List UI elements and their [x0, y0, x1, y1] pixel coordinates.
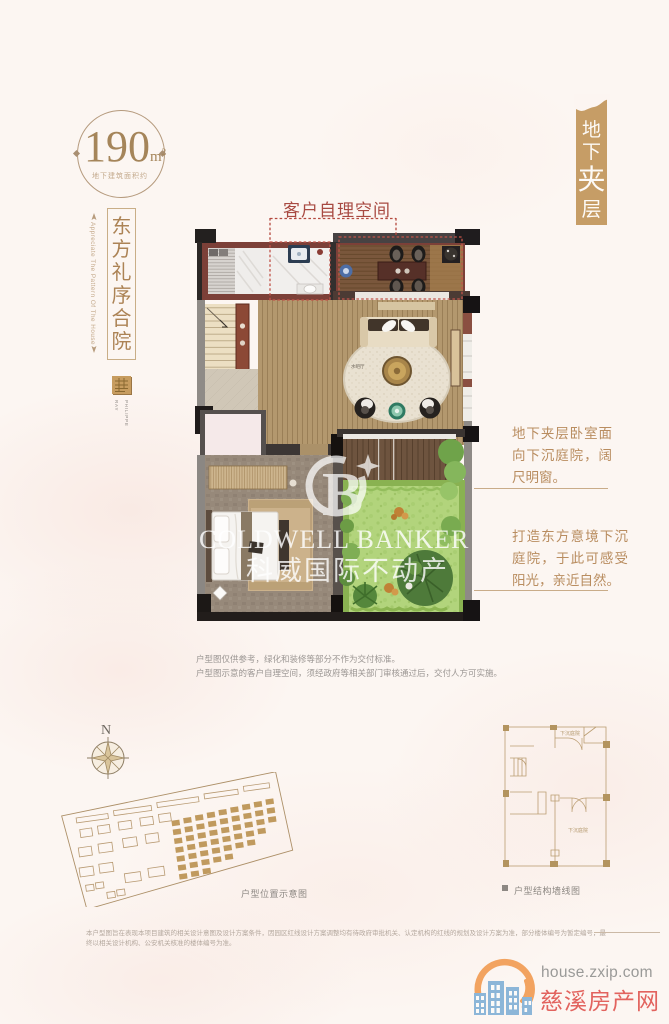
svg-text:水吧厅: 水吧厅	[351, 363, 365, 369]
svg-text:N: N	[101, 723, 111, 738]
svg-text:下沉庭院: 下沉庭院	[560, 730, 580, 737]
svg-text:B: B	[322, 461, 363, 523]
svg-text:下沉庭院: 下沉庭院	[568, 827, 588, 834]
